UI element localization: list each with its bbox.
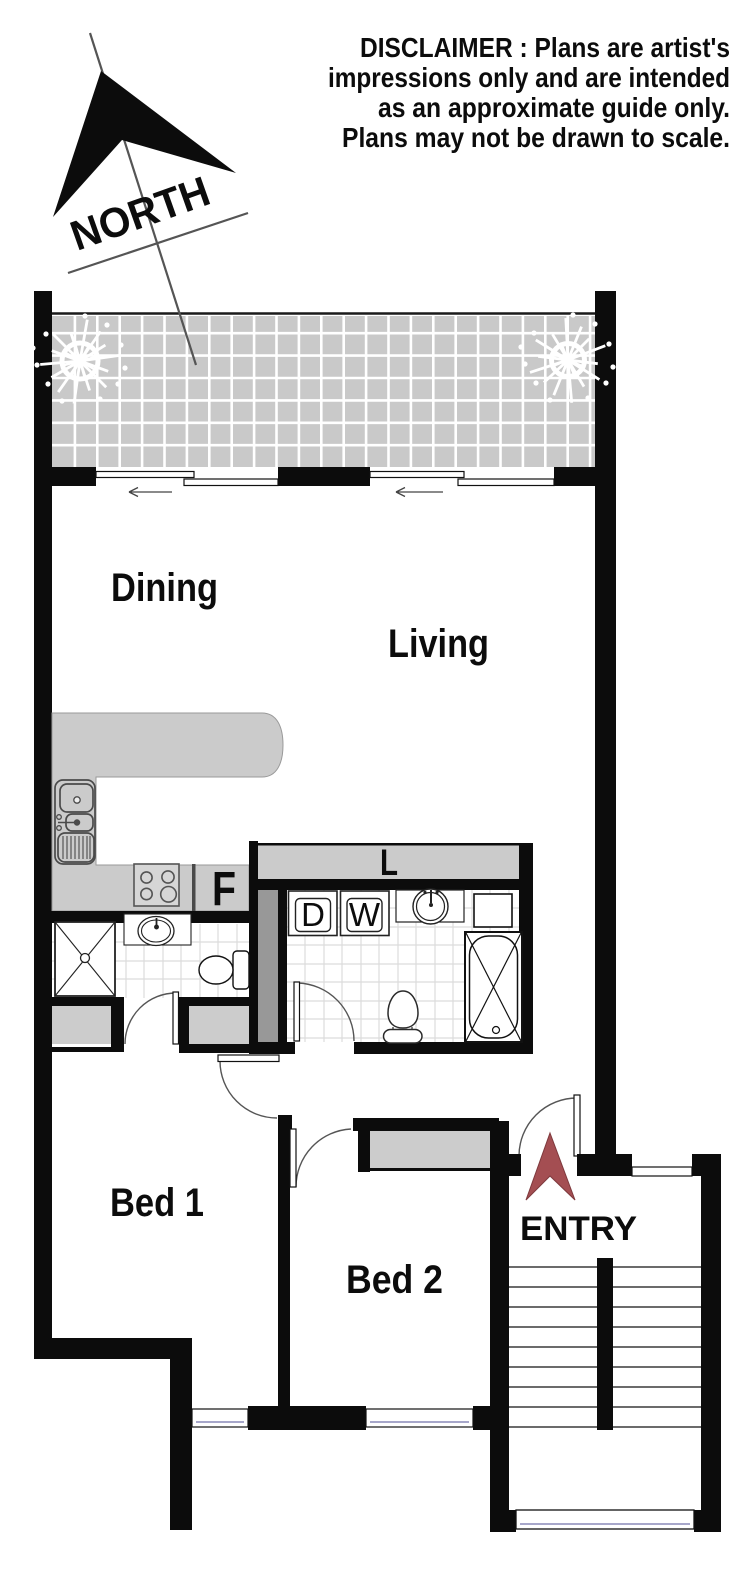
svg-text:ENTRY: ENTRY (520, 1210, 637, 1248)
svg-text:F: F (212, 863, 236, 916)
svg-text:Living: Living (388, 622, 489, 666)
svg-text:DISCLAIMER : Plans are artist': DISCLAIMER : Plans are artist's (360, 32, 730, 63)
svg-text:D: D (301, 896, 325, 933)
svg-text:W: W (349, 896, 381, 933)
svg-text:Bed 2: Bed 2 (346, 1258, 443, 1302)
svg-text:Plans may not be drawn to scal: Plans may not be drawn to scale. (342, 122, 730, 153)
svg-text:as an approximate guide only.: as an approximate guide only. (378, 92, 730, 123)
svg-text:Bed 1: Bed 1 (110, 1181, 204, 1225)
svg-text:L: L (380, 842, 398, 883)
svg-text:Dining: Dining (111, 566, 218, 610)
svg-text:impressions only and are inten: impressions only and are intended (328, 62, 730, 93)
